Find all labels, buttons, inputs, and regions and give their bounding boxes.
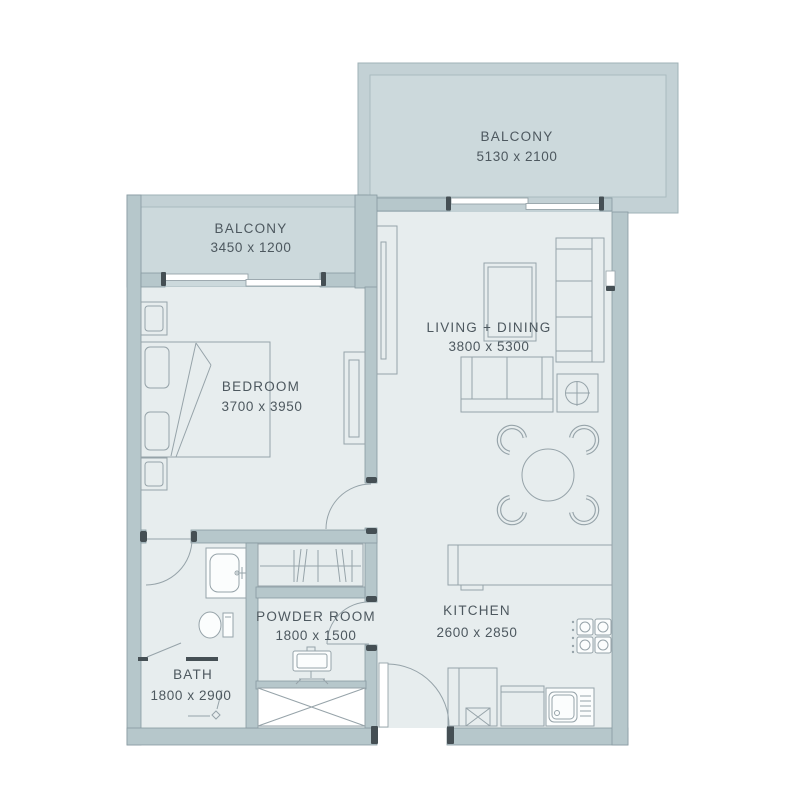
bedroom-dims: 3700 x 3950: [222, 399, 303, 414]
wall-powder-top: [256, 587, 365, 598]
balcony-right-label: BALCONY: [481, 129, 554, 144]
balcony-left-label: BALCONY: [215, 221, 288, 236]
wall-living-top-a: [367, 198, 450, 211]
wall-bottom-right: [447, 728, 628, 745]
wall-bottom-left: [127, 728, 377, 745]
floor-living-kitchen: [367, 212, 612, 728]
kitchen-label: KITCHEN: [443, 603, 511, 618]
dining-table: [522, 449, 574, 501]
vanity-sink: [206, 548, 246, 598]
wall-bedroom-living-c: [365, 645, 377, 728]
living-dining-label: LIVING + DINING: [427, 320, 552, 335]
floor-plan-canvas: BALCONY 5130 x 2100 BALCONY 3450 x 1200 …: [0, 0, 800, 800]
bath-label: BATH: [173, 667, 213, 682]
powder-room-dims: 1800 x 1500: [276, 628, 357, 643]
wall-right: [612, 212, 628, 745]
wall-balcony-divider: [355, 195, 377, 288]
balcony-left-dims: 3450 x 1200: [211, 240, 292, 255]
wall-bedroom-bottom: [191, 530, 377, 543]
wall-bath-divider: [246, 543, 258, 728]
bedroom-label: BEDROOM: [222, 379, 300, 394]
wall-bedroom-living-a: [365, 287, 377, 483]
kitchen-dims: 2600 x 2850: [437, 625, 518, 640]
service-shaft: [258, 688, 365, 726]
kitchen-sink: [546, 688, 594, 726]
balcony-right-dims: 5130 x 2100: [477, 149, 558, 164]
powder-room-label: POWDER ROOM: [256, 609, 376, 624]
living-dining-dims: 3800 x 5300: [449, 339, 530, 354]
floor-plan-page: BALCONY 5130 x 2100 BALCONY 3450 x 1200 …: [0, 0, 800, 800]
right-wall-notch: [606, 271, 615, 291]
toilet: [199, 612, 233, 638]
bath-dims: 1800 x 2900: [151, 688, 232, 703]
wall-left: [127, 195, 141, 745]
